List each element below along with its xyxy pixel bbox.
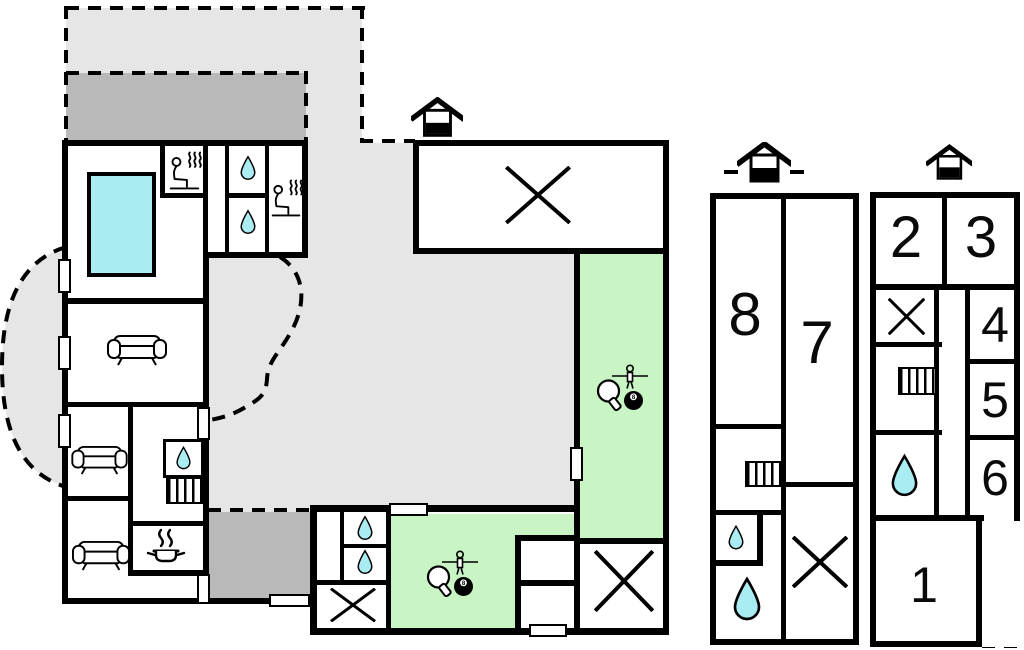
wall: [65, 402, 205, 407]
wall: [976, 515, 982, 647]
wall: [781, 193, 786, 645]
bed-cross-icon: [792, 536, 848, 588]
wall: [515, 580, 580, 586]
wall: [225, 143, 229, 255]
wall: [413, 140, 669, 146]
entrance-dash: [790, 170, 804, 174]
wall: [413, 140, 419, 254]
wall: [62, 140, 308, 146]
wall: [225, 193, 269, 198]
wall: [574, 538, 580, 635]
wall: [62, 140, 68, 604]
wall: [574, 538, 669, 544]
boundary-dashed-line: [360, 139, 415, 143]
boundary-dashed-line: [360, 6, 364, 143]
wall: [386, 512, 391, 628]
floor-plan-canvas: 8 7 2 3 4 5 6 1: [0, 0, 1024, 650]
foosball-player-icon: [627, 365, 633, 371]
wall: [65, 496, 128, 501]
bed-cross-icon: [888, 298, 925, 335]
wall: [203, 143, 208, 258]
room-number-1: 1: [894, 560, 954, 610]
shower-drop-icon: [356, 549, 374, 575]
room-number-8: 8: [706, 284, 784, 346]
boundary-dashed-line: [304, 71, 308, 143]
wall: [970, 435, 1020, 440]
wall: [663, 140, 669, 635]
door: [197, 407, 210, 440]
wall: [340, 512, 344, 584]
wall: [65, 298, 205, 304]
wall: [160, 193, 208, 198]
wall: [710, 193, 716, 645]
boundary-dashed-line: [208, 508, 312, 512]
door: [58, 259, 71, 293]
boundary-dashed-line: [64, 6, 68, 145]
sauna-icon: [167, 149, 203, 191]
room-number-4: 4: [965, 300, 1024, 350]
door: [58, 414, 71, 448]
room-number-7: 7: [778, 312, 856, 374]
door: [570, 447, 583, 481]
wall: [870, 342, 942, 347]
foosball-player-icon: [457, 551, 463, 557]
terrace-dark-area: [205, 512, 312, 600]
wall: [870, 515, 984, 521]
game-room-icon: 8: [595, 363, 649, 411]
shower-drop-icon: [239, 155, 257, 181]
game-room-south: [515, 514, 574, 535]
wall: [316, 580, 390, 585]
game-room-icon: 8: [425, 549, 479, 597]
wall: [160, 143, 165, 195]
wall: [310, 628, 669, 635]
shower-drop-icon: [239, 209, 257, 235]
wall: [413, 248, 669, 254]
wall: [853, 193, 859, 645]
boundary-dashed-line: [66, 71, 308, 75]
wall: [870, 641, 982, 647]
room-number-5: 5: [965, 375, 1024, 425]
wall: [205, 252, 308, 258]
shower-drop-icon: [356, 515, 374, 541]
door: [197, 574, 210, 604]
stairs-icon: [166, 477, 204, 504]
stairs-icon: [745, 461, 782, 487]
entrance-icon: [411, 97, 463, 140]
wall: [310, 505, 580, 512]
wall: [934, 284, 939, 521]
wall: [128, 570, 205, 576]
sauna-icon: [269, 177, 304, 218]
wall: [757, 512, 763, 566]
wall: [340, 544, 390, 548]
entrance-dash: [724, 170, 738, 174]
bed-cross-icon: [505, 166, 571, 224]
sofa-icon: [72, 540, 130, 571]
room-number-6: 6: [965, 453, 1024, 503]
wall: [310, 505, 317, 635]
wall: [515, 535, 580, 541]
room-number-3: 3: [942, 208, 1020, 268]
bath-drop-icon: [175, 445, 192, 471]
room-number-2: 2: [867, 208, 945, 268]
wall: [710, 510, 786, 515]
bath-drop-icon: [889, 451, 920, 500]
door: [58, 336, 71, 370]
sofa-icon: [71, 445, 128, 475]
door: [389, 503, 428, 516]
wall: [716, 560, 763, 566]
swimming-pool: [87, 172, 156, 277]
entrance-icon: [926, 142, 972, 185]
window: [269, 594, 310, 607]
sofa-icon: [107, 334, 167, 366]
bed-cross-icon: [594, 550, 654, 612]
bath-drop-icon: [731, 574, 763, 624]
entrance-icon: [737, 142, 791, 185]
wall: [128, 521, 205, 526]
wall: [781, 482, 859, 487]
wall: [574, 252, 580, 544]
boundary-dashed-line: [66, 6, 366, 10]
bed-cross-icon: [330, 588, 376, 622]
wall: [710, 424, 786, 429]
stairs-icon: [898, 367, 937, 395]
wall: [970, 359, 1020, 364]
shower-drop-icon: [727, 524, 745, 551]
carport-dark-area: [66, 73, 306, 143]
kitchen-pot-icon: [146, 528, 186, 568]
wall: [870, 430, 942, 435]
door: [529, 624, 567, 637]
